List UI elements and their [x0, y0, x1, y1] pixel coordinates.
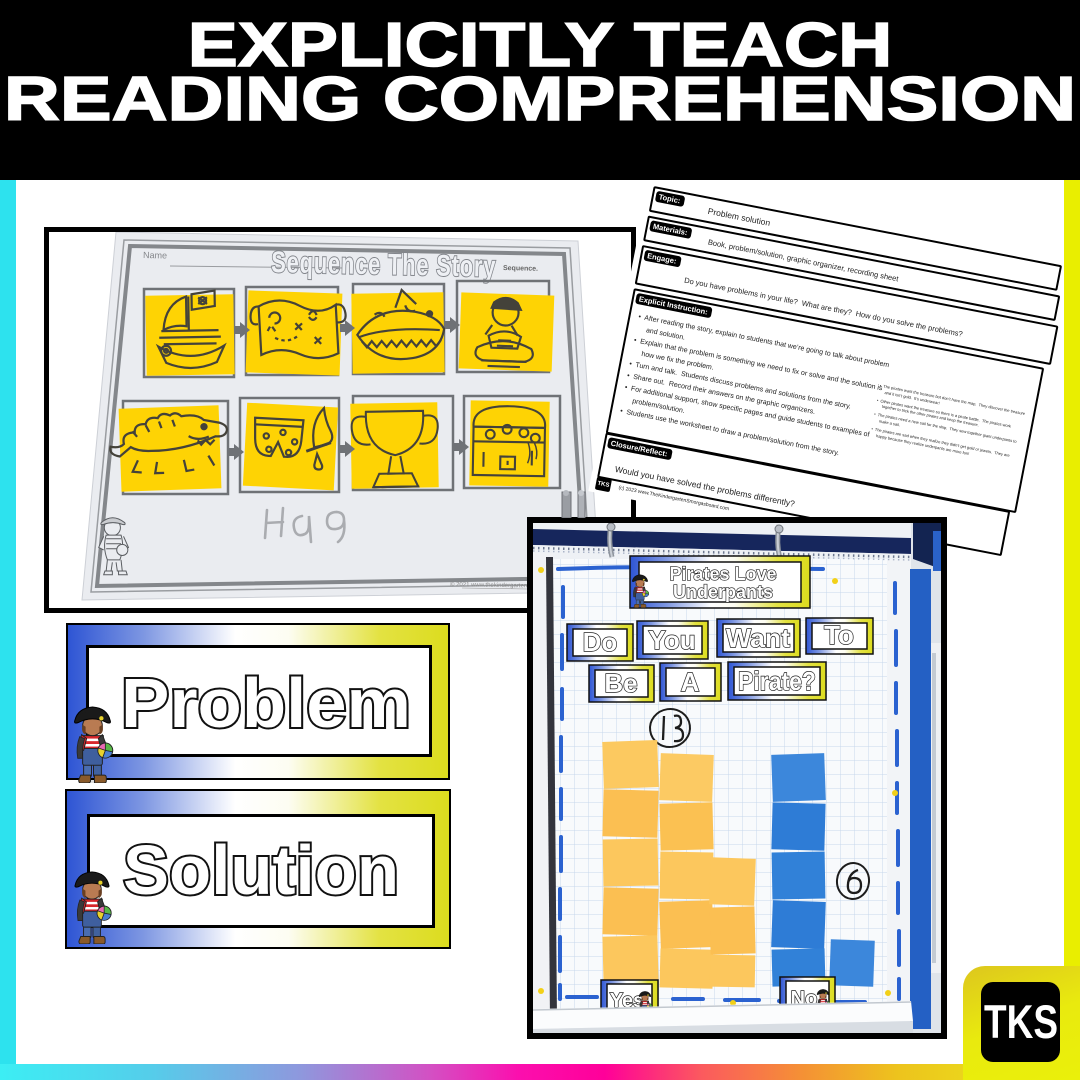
svg-text:To: To	[824, 620, 854, 650]
svg-text:Do: Do	[583, 627, 618, 657]
svg-text:Sequence The Story: Sequence The Story	[271, 246, 497, 284]
svg-text:Be: Be	[604, 668, 637, 698]
svg-text:Pirate?: Pirate?	[738, 666, 816, 696]
svg-text:Problem: Problem	[121, 664, 411, 742]
svg-text:Name: Name	[143, 250, 167, 260]
svg-text:Underpants: Underpants	[673, 582, 773, 602]
svg-text:A: A	[681, 667, 700, 697]
svg-text:TKS: TKS	[984, 995, 1058, 1048]
svg-text:Want: Want	[726, 623, 790, 653]
svg-text:Pirates Love: Pirates Love	[669, 564, 776, 584]
svg-text:You: You	[648, 625, 695, 655]
svg-text:Solution: Solution	[123, 831, 399, 909]
svg-text:Sequence.: Sequence.	[503, 265, 538, 273]
